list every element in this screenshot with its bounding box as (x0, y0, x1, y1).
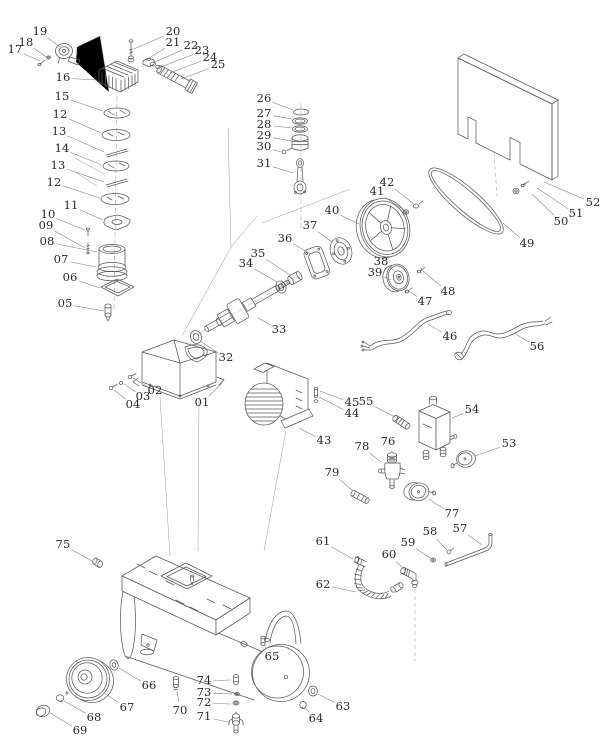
part-label-47: 47 (418, 294, 433, 308)
belt-guard-grid (458, 54, 558, 180)
part-label-07: 07 (54, 252, 69, 266)
piston-pin-30 (282, 148, 292, 154)
leader-line-51 (537, 188, 568, 209)
part-label-36: 36 (278, 231, 293, 245)
leader-line-69 (50, 713, 72, 726)
leader-line-75 (71, 550, 92, 561)
exhaust-pipe-57 (445, 534, 492, 567)
part-label-19: 19 (33, 24, 48, 38)
motor-group (245, 363, 411, 430)
leader-line-29 (273, 138, 291, 141)
leader-line-78 (370, 453, 382, 462)
leader-line-11 (80, 210, 103, 220)
leader-line-25 (181, 68, 209, 79)
cylinder-08-07 (97, 245, 127, 281)
pulley-bolt-48 (417, 268, 425, 273)
leader-line-77 (429, 499, 444, 509)
part-label-74: 74 (197, 673, 212, 687)
part-label-60: 60 (382, 547, 397, 561)
wheel (67, 658, 114, 703)
leader-line-30 (273, 150, 281, 152)
leader-line-16 (73, 79, 98, 80)
leader-line-59 (416, 548, 430, 558)
head-bolt-20 (128, 40, 134, 62)
leader-line-09 (54, 231, 85, 248)
part-label-35: 35 (251, 246, 266, 260)
exploded-parts-diagram-page: 1718191620212223242515121314131211100908… (0, 0, 615, 755)
part-label-37: 37 (303, 218, 318, 232)
leader-line-60 (396, 562, 405, 571)
flywheel-40 (350, 193, 416, 264)
part-label-70: 70 (173, 703, 188, 717)
tank-foot-bracket (141, 634, 158, 655)
leader-line-67 (104, 693, 119, 703)
leader-line-76 (392, 451, 393, 452)
hub-cap (56, 692, 68, 702)
gasket-36 (303, 245, 331, 281)
check-valve-61 (354, 556, 366, 567)
controls-group (350, 396, 492, 599)
part-label-53: 53 (502, 436, 517, 450)
leader-line-03 (124, 384, 135, 392)
part-label-04: 04 (126, 397, 141, 411)
part-label-32: 32 (219, 350, 234, 364)
reed-valve-13b (106, 179, 128, 187)
part-label-25: 25 (211, 57, 226, 71)
leader-line-45 (320, 391, 343, 400)
leader-line-04 (114, 390, 126, 399)
leader-line-40 (341, 215, 359, 224)
leader-line-28 (273, 126, 292, 128)
part-label-39: 39 (368, 265, 383, 279)
part-label-52: 52 (586, 195, 601, 209)
motor-bolt-44-45 (314, 387, 318, 402)
hub-cup (35, 703, 52, 718)
motor-43 (245, 363, 313, 428)
part-label-43: 43 (317, 433, 332, 447)
gasket-12a (102, 130, 130, 141)
part-label-50: 50 (554, 214, 569, 228)
ring-59 (431, 558, 436, 562)
leader-line-34 (254, 269, 277, 282)
regulator-76-78 (379, 453, 406, 489)
part-label-01: 01 (195, 395, 210, 409)
part-label-57: 57 (453, 521, 468, 535)
part-label-16: 16 (56, 70, 71, 84)
part-label-73: 73 (197, 685, 212, 699)
leader-line-24 (170, 61, 201, 73)
part-label-66: 66 (142, 678, 157, 692)
leader-line-61 (331, 547, 353, 559)
pressure-switch-54 (419, 396, 457, 460)
base-gasket-06 (101, 279, 134, 296)
part-label-30: 30 (257, 139, 272, 153)
reed-valve-13a (106, 149, 128, 157)
part-label-68: 68 (87, 710, 102, 724)
part-label-64: 64 (309, 711, 324, 725)
part-label-13: 13 (51, 158, 66, 172)
leader-line-18 (34, 48, 48, 58)
part-label-55: 55 (359, 394, 374, 408)
part-label-05: 05 (58, 296, 73, 310)
piston-29 (292, 135, 308, 150)
fitting-05 (105, 304, 111, 321)
tank-handle (265, 611, 302, 644)
pressure-gauge-53 (449, 449, 477, 470)
tank-platform (122, 556, 250, 635)
leader-line-12 (69, 119, 101, 133)
axle-bolt (173, 676, 178, 690)
part-label-56: 56 (530, 339, 545, 353)
compressor-exploded-diagram: 1718191620212223242515121314131211100908… (0, 0, 615, 755)
leader-line-05 (74, 306, 104, 311)
leader-line-13 (68, 136, 104, 152)
part-label-77: 77 (445, 506, 460, 520)
gasket-12b (101, 194, 129, 205)
part-label-46: 46 (443, 329, 458, 343)
part-label-76: 76 (381, 434, 396, 448)
part-label-31: 31 (257, 156, 272, 170)
part-label-06: 06 (63, 270, 78, 284)
part-label-49: 49 (520, 236, 535, 250)
part-label-62: 62 (316, 577, 331, 591)
part-label-67: 67 (120, 700, 135, 714)
crankcase-bolts-02-03-04 (109, 374, 136, 390)
v-belt-49 (421, 160, 511, 243)
leader-line-43 (299, 428, 316, 437)
leader-line-70 (177, 691, 179, 702)
part-label-15: 15 (55, 89, 70, 103)
leader-line-74 (214, 680, 232, 681)
leader-line-07 (70, 262, 96, 267)
bearing-cover-37 (327, 235, 356, 268)
leader-line-73 (214, 693, 233, 694)
leader-line-66 (119, 668, 141, 681)
leader-line-26 (273, 102, 293, 110)
part-label-79: 79 (325, 465, 340, 479)
part-label-71: 71 (197, 709, 212, 723)
washer-63 (308, 685, 318, 696)
bearing-32 (189, 329, 204, 345)
gasket-11 (104, 215, 130, 230)
piston-group (282, 109, 309, 194)
part-label-14: 14 (55, 141, 70, 155)
leader-line-21 (146, 48, 165, 60)
leader-line-55 (374, 406, 395, 417)
leader-line-15 (71, 100, 103, 111)
pressure-gauge-77 (402, 479, 436, 504)
leader-line-56 (514, 333, 529, 342)
part-label-78: 78 (355, 439, 370, 453)
leader-line-53 (475, 447, 500, 456)
fitting-58 (447, 548, 454, 554)
leader-line-10 (57, 219, 85, 230)
part-label-42: 42 (380, 175, 395, 189)
leader-line-46 (428, 324, 442, 332)
crankcase-group (109, 235, 355, 399)
part-label-09: 09 (39, 218, 54, 232)
tank-plug-75 (91, 557, 103, 568)
part-label-18: 18 (19, 35, 34, 49)
leader-line-14 (71, 153, 102, 166)
leader-line-22 (153, 50, 182, 63)
leader-line-58 (437, 539, 448, 550)
connecting-rod-31 (294, 159, 306, 195)
part-label-69: 69 (73, 723, 88, 737)
leader-line-20 (134, 36, 164, 49)
part-label-21: 21 (166, 35, 181, 49)
leader-line-31 (273, 167, 293, 173)
plug-64 (300, 701, 306, 708)
part-label-48: 48 (441, 284, 456, 298)
braided-hose-62 (354, 565, 404, 599)
part-label-45: 45 (345, 395, 360, 409)
part-label-58: 58 (423, 524, 438, 538)
part-label-59: 59 (401, 535, 416, 549)
leader-line-17 (24, 54, 40, 61)
leader-line-12 (63, 186, 100, 198)
fitting-79 (350, 490, 370, 504)
leader-line-35 (266, 259, 290, 275)
motor-cord-46 (361, 311, 452, 352)
leader-line-27 (273, 116, 292, 119)
leader-line-62 (332, 587, 356, 592)
leader-line-49 (503, 223, 520, 238)
piston-ring-27 (293, 118, 308, 124)
leader-line-71 (213, 719, 228, 722)
part-label-65: 65 (265, 649, 280, 663)
part-label-12: 12 (47, 175, 62, 189)
leader-line-63 (318, 694, 335, 703)
part-label-33: 33 (272, 322, 287, 336)
part-label-26: 26 (257, 91, 272, 105)
leader-line-33 (258, 318, 271, 325)
part-label-08: 08 (40, 234, 55, 248)
flywheel-nut-42 (414, 201, 424, 208)
part-label-61: 61 (316, 534, 331, 548)
part-label-51: 51 (569, 206, 584, 220)
leader-line-68 (64, 701, 86, 713)
leader-line-06 (79, 281, 100, 288)
piston-ring-28 (293, 126, 308, 132)
leader-line-54 (452, 414, 463, 419)
leader-line-57 (468, 535, 482, 545)
part-label-13: 13 (52, 124, 67, 138)
leader-line-08 (56, 244, 97, 252)
part-label-40: 40 (325, 203, 340, 217)
leader-line-79 (339, 479, 353, 491)
leader-line-72 (214, 703, 232, 704)
part-label-54: 54 (465, 402, 480, 416)
outlet-bolt-22-25 (151, 62, 198, 93)
part-label-12: 12 (53, 107, 68, 121)
guard-fasteners-50-51-52 (513, 181, 529, 194)
leader-line-42 (395, 189, 415, 204)
leader-line-47 (409, 291, 417, 297)
leader-line-23 (161, 55, 193, 68)
leader-line-44 (319, 397, 344, 410)
leader-line-48 (423, 271, 441, 286)
part-label-63: 63 (336, 699, 351, 713)
part-label-75: 75 (56, 537, 71, 551)
part-label-11: 11 (64, 198, 79, 212)
leader-line-19 (48, 38, 60, 47)
leader-line-37 (318, 232, 332, 242)
